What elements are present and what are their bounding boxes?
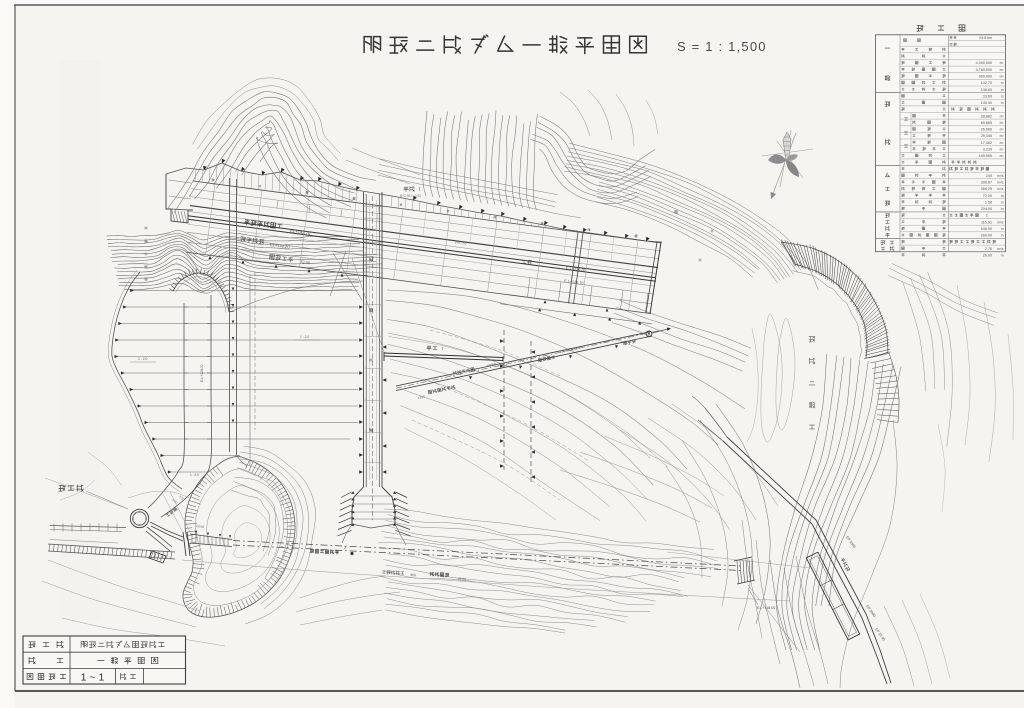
svg-text:260.00: 260.00 [981, 234, 992, 238]
svg-text:72.00: 72.00 [983, 194, 992, 198]
svg-text:204.00: 204.00 [981, 207, 992, 211]
svg-text:S = 1 : 1,500: S = 1 : 1,500 [677, 39, 767, 54]
svg-text:B+2.30 L=2.00: B+2.30 L=2.00 [400, 194, 421, 198]
svg-text:2: 2 [344, 546, 346, 550]
svg-text:m³/s: m³/s [997, 174, 1004, 178]
svg-text:m: m [1001, 254, 1004, 258]
svg-text:169,005: 169,005 [979, 154, 992, 158]
svg-text:1 : 2.0: 1 : 2.0 [190, 473, 199, 477]
svg-text:29,346: 29,346 [981, 134, 992, 138]
svg-text:m: m [1001, 101, 1004, 105]
svg-text:28,882: 28,882 [981, 114, 992, 118]
svg-text:360: 360 [410, 573, 416, 577]
svg-text:2: 2 [986, 214, 988, 218]
svg-text:360,000: 360,000 [979, 75, 992, 79]
svg-text:m: m [1001, 81, 1004, 85]
svg-text:142.70: 142.70 [981, 81, 992, 85]
svg-text:25.8 km: 25.8 km [979, 36, 992, 40]
svg-text:m³/s: m³/s [997, 247, 1004, 251]
svg-text:I: I [419, 187, 420, 193]
svg-text:1 : 2.0: 1 : 2.0 [138, 357, 148, 361]
svg-text:(530): (530) [458, 577, 466, 581]
svg-text:I: I [442, 346, 443, 351]
svg-text:m: m [1001, 201, 1004, 205]
svg-text:m³/s: m³/s [997, 181, 1004, 185]
svg-text:m: m [1001, 234, 1004, 238]
svg-text:3,239: 3,239 [983, 147, 992, 151]
svg-text:26,666: 26,666 [981, 128, 992, 132]
svg-text:146.60: 146.60 [981, 88, 992, 92]
svg-text:E.L+124.00: E.L+124.00 [200, 364, 204, 382]
svg-text:26.00: 26.00 [983, 254, 992, 258]
svg-text:4,300,000: 4,300,000 [976, 61, 992, 65]
svg-text:1 : 2.0: 1 : 2.0 [300, 335, 309, 339]
svg-text:3,760,000: 3,760,000 [976, 68, 992, 72]
svg-text:159: 159 [986, 174, 992, 178]
svg-text:115.81: 115.81 [981, 220, 992, 224]
svg-text:m³/s: m³/s [997, 220, 1004, 224]
svg-text:140.00: 140.00 [981, 101, 992, 105]
svg-text:17,462: 17,462 [981, 141, 992, 145]
svg-text:1.58: 1.58 [985, 201, 992, 205]
svg-text:546.00: 546.00 [981, 227, 992, 231]
svg-text:m³/s: m³/s [997, 187, 1004, 191]
svg-text:m: m [1001, 94, 1004, 98]
svg-text:m: m [1001, 194, 1004, 198]
svg-text:m: m [1001, 88, 1004, 92]
svg-text:1 ~ 1: 1 ~ 1 [81, 672, 105, 684]
svg-text:368.25: 368.25 [981, 187, 992, 191]
svg-text:69,865: 69,865 [981, 121, 992, 125]
svg-text:m: m [1001, 207, 1004, 211]
svg-text:306.67: 306.67 [981, 181, 992, 185]
svg-text:2.76: 2.76 [985, 247, 992, 251]
svg-text:33.60: 33.60 [983, 94, 992, 98]
svg-text:m: m [1001, 227, 1004, 231]
